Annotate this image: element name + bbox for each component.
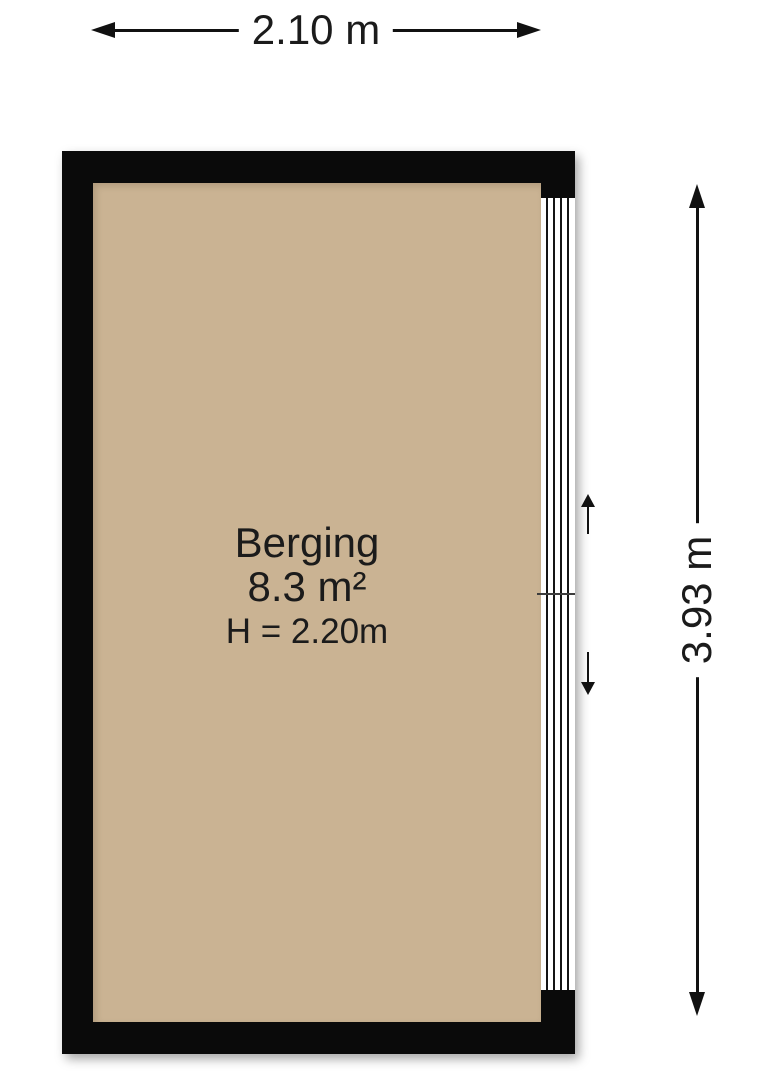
room-ceiling-height: H = 2.20m xyxy=(92,612,522,652)
arrow-left-icon xyxy=(91,22,115,38)
height-dimension: 3.93 m xyxy=(679,184,715,1016)
room-name: Berging xyxy=(92,521,522,565)
slide-up-arrow-icon xyxy=(581,494,595,534)
slide-down-arrow-icon xyxy=(581,652,595,695)
floorplan-canvas: 2.10 m Berging 8.3 m² H = 2.20m 3.93 m xyxy=(0,0,764,1080)
height-dimension-label: 3.93 m xyxy=(676,523,718,677)
arrow-right-icon xyxy=(517,22,541,38)
arrow-down-icon xyxy=(689,992,705,1016)
room-label: Berging 8.3 m² H = 2.20m xyxy=(92,521,522,652)
sliding-window xyxy=(541,198,575,990)
slide-up-shaft xyxy=(587,504,589,534)
slide-down-shaft xyxy=(587,652,589,685)
width-dimension-label: 2.10 m xyxy=(239,9,393,51)
window-divider xyxy=(537,593,575,595)
width-dimension: 2.10 m xyxy=(91,12,541,48)
room-area: 8.3 m² xyxy=(92,565,522,609)
slide-down-arrowhead xyxy=(581,682,595,695)
arrow-up-icon xyxy=(689,184,705,208)
